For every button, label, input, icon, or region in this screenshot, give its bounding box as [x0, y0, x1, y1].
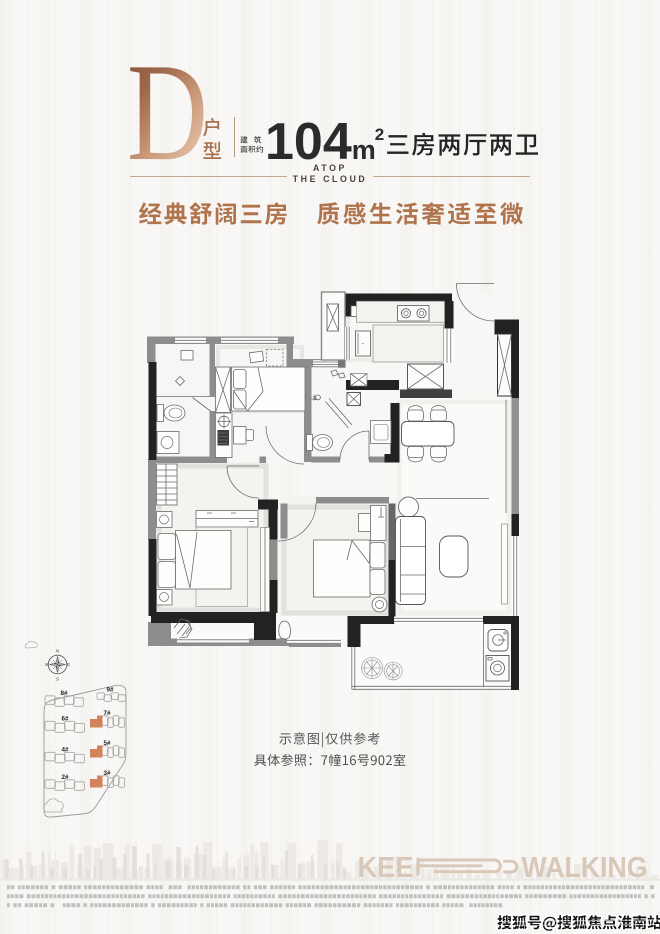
svg-text:S: S [56, 677, 59, 682]
svg-text:WALKING: WALKING [522, 852, 648, 884]
svg-text:KEE: KEE [358, 852, 414, 884]
svg-text:N: N [56, 649, 59, 654]
svg-text:W: W [45, 662, 49, 667]
svg-text:E: E [67, 662, 70, 667]
